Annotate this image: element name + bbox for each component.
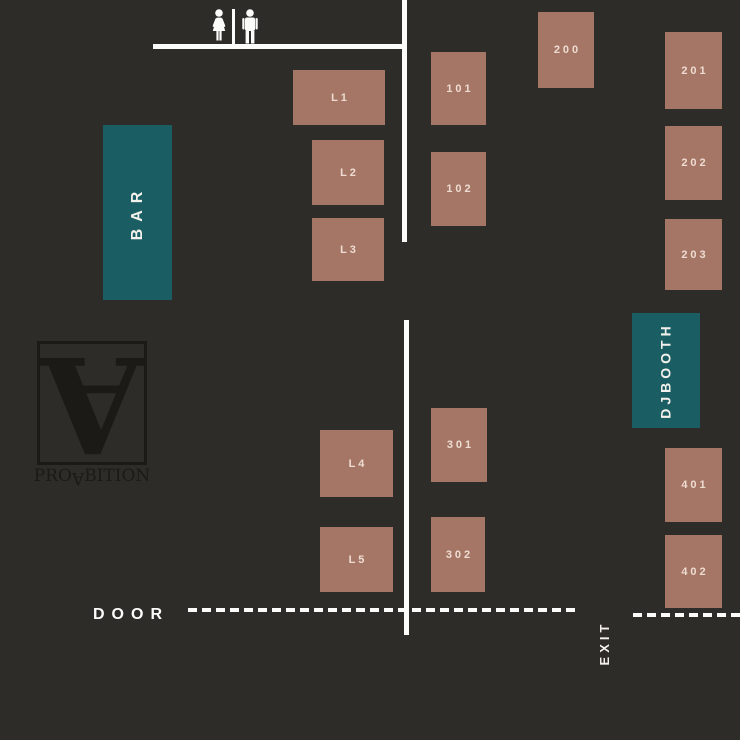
table-label: 101 bbox=[443, 83, 473, 95]
dj-booth-label: DJ BOOTH bbox=[609, 337, 724, 405]
proabition-wordmark: PROABITION bbox=[30, 466, 154, 486]
table-label: L1 bbox=[328, 92, 350, 104]
table-label: 203 bbox=[678, 249, 708, 261]
table-label: L3 bbox=[337, 244, 359, 256]
wordmark-pre: PRO bbox=[34, 466, 72, 486]
table-301[interactable]: 301 bbox=[431, 408, 487, 482]
table-label: L4 bbox=[346, 458, 368, 470]
woman-restroom-icon bbox=[206, 9, 232, 45]
dj-booth-label-line2: BOOTH bbox=[653, 322, 680, 393]
wall-top-horizontal bbox=[153, 44, 403, 49]
table-L3[interactable]: L3 bbox=[312, 218, 384, 281]
table-201[interactable]: 201 bbox=[665, 32, 722, 109]
dj-booth-label-line1: DJ bbox=[653, 393, 680, 419]
exit-label-container: EXIT bbox=[585, 612, 623, 674]
table-label: 202 bbox=[678, 157, 708, 169]
venue-table-map: BAR DJ BOOTH A PROABITION L1L2L3L4L51011… bbox=[0, 0, 740, 740]
bar-area: BAR bbox=[103, 125, 172, 300]
table-102[interactable]: 102 bbox=[431, 152, 486, 226]
wall-vertical-upper bbox=[402, 0, 407, 242]
wordmark-flipped-a: A bbox=[72, 468, 84, 488]
table-label: L5 bbox=[346, 554, 368, 566]
table-L5[interactable]: L5 bbox=[320, 527, 393, 592]
table-label: 302 bbox=[443, 549, 473, 561]
table-101[interactable]: 101 bbox=[431, 52, 486, 125]
door-label: DOOR bbox=[93, 606, 169, 624]
table-L1[interactable]: L1 bbox=[293, 70, 385, 125]
table-label: 401 bbox=[678, 479, 708, 491]
table-L2[interactable]: L2 bbox=[312, 140, 384, 205]
table-label: 102 bbox=[443, 183, 473, 195]
table-302[interactable]: 302 bbox=[431, 517, 485, 592]
table-label: L2 bbox=[337, 167, 359, 179]
table-label: 200 bbox=[551, 44, 581, 56]
wordmark-post: BITION bbox=[84, 466, 150, 486]
table-label: 402 bbox=[678, 566, 708, 578]
wall-vertical-lower bbox=[404, 320, 409, 635]
table-label: 301 bbox=[444, 439, 474, 451]
proabition-logo-mark: A bbox=[37, 341, 147, 465]
exit-dashed-line bbox=[633, 613, 740, 617]
restroom-divider bbox=[232, 9, 235, 46]
table-401[interactable]: 401 bbox=[665, 448, 722, 522]
table-402[interactable]: 402 bbox=[665, 535, 722, 608]
bar-label: BAR bbox=[50, 178, 225, 247]
door-dashed-line bbox=[188, 608, 578, 612]
man-restroom-icon bbox=[238, 9, 262, 45]
table-L4[interactable]: L4 bbox=[320, 430, 393, 497]
table-200[interactable]: 200 bbox=[538, 12, 594, 88]
table-label: 201 bbox=[678, 65, 708, 77]
dj-booth-area: DJ BOOTH bbox=[632, 313, 700, 428]
flipped-a-monogram: A bbox=[41, 341, 143, 465]
table-203[interactable]: 203 bbox=[665, 219, 722, 290]
exit-label: EXIT bbox=[573, 624, 635, 662]
table-202[interactable]: 202 bbox=[665, 126, 722, 200]
